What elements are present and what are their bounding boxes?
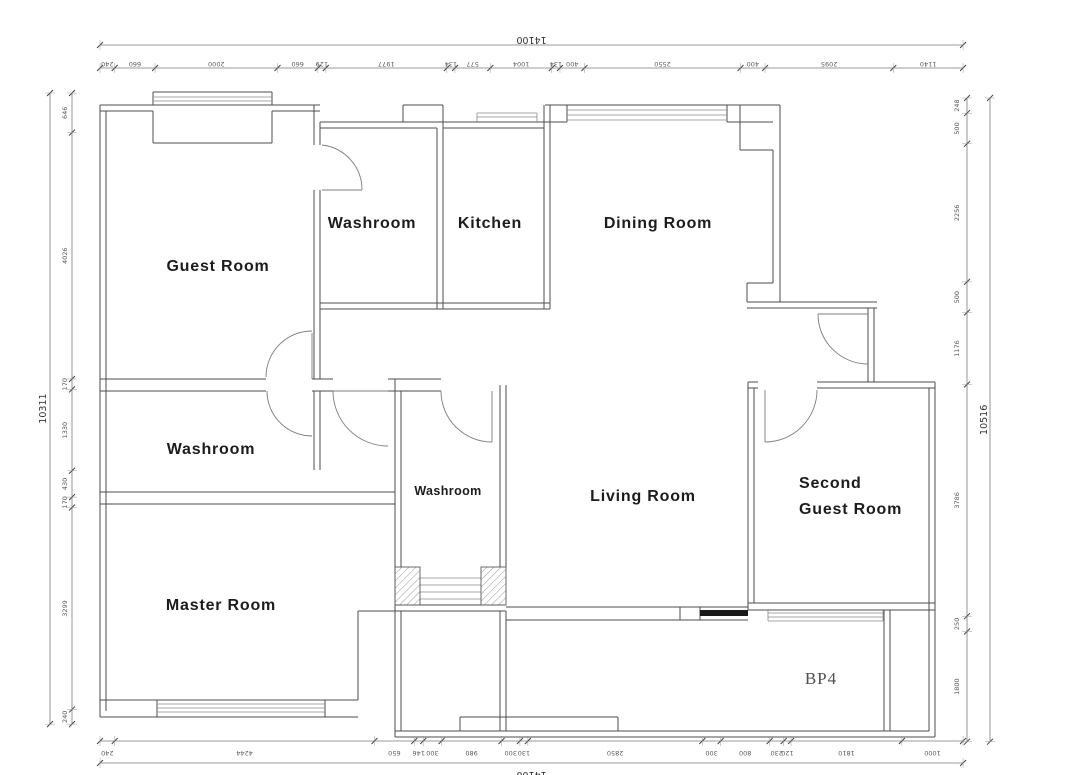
master-room-label: Master Room [166, 597, 276, 614]
dimension-value: 300 [426, 749, 438, 757]
dimension-value: 1800 [953, 678, 961, 695]
dimension-value: 1977 [378, 60, 395, 68]
dimension-value: 146 [413, 749, 425, 757]
second-guest-room-label-line1: Second [799, 475, 862, 492]
washroom-center-label: Washroom [414, 484, 481, 498]
dimension-value: 400 [747, 60, 759, 68]
dimension-value: 660 [129, 60, 141, 68]
dimension-value: 500 [953, 122, 961, 134]
dimension-value: 2000 [208, 60, 225, 68]
dimension-value: 2256 [953, 205, 961, 222]
dimension-value: 1000 [924, 749, 941, 757]
dimension-value: 120 [781, 749, 793, 757]
dimension-value: 577 [466, 60, 478, 68]
dimension-value: 800 [739, 749, 751, 757]
dimension-value: 3299 [61, 600, 69, 617]
dimension-total: 14100 [516, 769, 546, 775]
hatched-pier-right [481, 567, 506, 605]
living-room-label: Living Room [590, 488, 696, 505]
dimension-value: 980 [465, 749, 477, 757]
dimension-value: 170 [61, 496, 69, 508]
dimension-chain-top: 2406602000660129197713457710041344002550… [97, 34, 966, 73]
dimension-value: 650 [388, 749, 400, 757]
kitchen-label: Kitchen [458, 215, 522, 232]
dimension-value: 248 [953, 99, 961, 111]
hall-washroom-master-walls [100, 379, 748, 737]
dimension-value: 1140 [920, 60, 937, 68]
dimension-value: 240 [101, 60, 113, 68]
dimension-value: 4244 [236, 749, 253, 757]
guest-room-walls [100, 92, 320, 379]
dimension-value: 300 [705, 749, 717, 757]
dimension-value: 1330 [61, 422, 69, 439]
dining-room-walls [545, 105, 877, 382]
dimension-chain-left: 64640261701330430170329924010311 [38, 90, 77, 727]
dimension-value: 500 [953, 291, 961, 303]
dimension-value: 230 [770, 749, 782, 757]
guest-room-label: Guest Room [166, 258, 269, 275]
dimension-total: 10311 [38, 393, 49, 423]
dimension-value: 129 [316, 60, 328, 68]
dimension-value: 3786 [953, 492, 961, 509]
dimension-value: 300 [505, 749, 517, 757]
dimension-value: 170 [61, 378, 69, 390]
dining-room-label: Dining Room [604, 215, 712, 232]
second-guest-room-walls [748, 382, 935, 731]
dimension-value: 2850 [607, 749, 624, 757]
dimension-value: 646 [61, 107, 69, 119]
dimension-value: 400 [566, 60, 578, 68]
dimension-chain-right: 248500225650011763786250180010516 [953, 95, 995, 745]
doors [266, 145, 868, 446]
floor-plan-canvas: Guest Room Washroom Kitchen Dining Room … [0, 0, 1080, 775]
dimension-value: 1004 [513, 60, 530, 68]
dimension-value: 660 [291, 60, 303, 68]
dimension-value: 430 [61, 478, 69, 490]
dimension-value: 1176 [953, 340, 961, 357]
hatched-pier-left [395, 567, 420, 605]
washroom-kitchen-walls [320, 105, 550, 309]
dimension-value: 240 [61, 711, 69, 723]
dimension-value: 4026 [61, 247, 69, 264]
dimension-value: 250 [953, 618, 961, 630]
washroom-top-label: Washroom [328, 215, 416, 232]
second-guest-room-label-line2: Guest Room [799, 501, 902, 518]
dimension-total: 10516 [979, 405, 990, 435]
floor-plan-page: Guest Room Washroom Kitchen Dining Room … [0, 0, 1080, 775]
dimension-annotations: 2406602000660129197713457710041344002550… [38, 34, 995, 775]
dimension-total: 14100 [516, 34, 546, 45]
exterior-walls [100, 105, 935, 737]
dimension-value: 2550 [654, 60, 671, 68]
washroom-mid-label: Washroom [167, 441, 255, 458]
dimension-value: 130 [518, 749, 530, 757]
dimension-value: 2095 [821, 60, 838, 68]
dimension-value: 1810 [838, 749, 855, 757]
dimension-value: 240 [101, 749, 113, 757]
door-sill-bar [700, 610, 748, 616]
balcony-bp4-label: BP4 [805, 669, 837, 688]
dimension-chain-bottom: 2404244650146300980300130285030080023012… [97, 736, 966, 775]
